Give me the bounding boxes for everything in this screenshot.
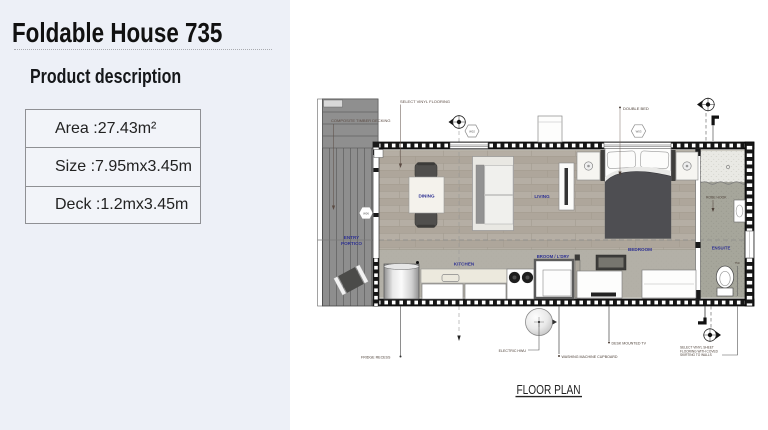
svg-text:COMPOSITE TIMBER DECKING: COMPOSITE TIMBER DECKING (331, 118, 391, 123)
svg-text:BEDROOM: BEDROOM (628, 247, 652, 252)
svg-text:WASHING MACHINE CUPBOARD: WASHING MACHINE CUPBOARD (562, 355, 618, 359)
svg-text:LIVING: LIVING (534, 194, 550, 199)
svg-text:ENSUITE: ENSUITE (712, 246, 731, 251)
svg-text:750: 750 (734, 261, 739, 265)
svg-text:SELECT VINYL FLOORING: SELECT VINYL FLOORING (400, 99, 450, 104)
svg-text:DINING: DINING (418, 194, 435, 199)
svg-text:SKIRTING TO WALLS: SKIRTING TO WALLS (680, 353, 712, 357)
svg-text:PORTICO: PORTICO (341, 241, 362, 246)
svg-text:W06: W06 (363, 211, 369, 215)
svg-text:KITCHEN: KITCHEN (454, 262, 475, 267)
svg-text:DOUBLE BED: DOUBLE BED (623, 106, 649, 111)
svg-text:W03: W03 (636, 129, 642, 133)
svg-text:FRIDGE RECESS: FRIDGE RECESS (361, 356, 391, 360)
svg-text:DESK MOUNTED TV: DESK MOUNTED TV (612, 342, 647, 346)
svg-text:W02: W02 (469, 129, 475, 133)
svg-text:ROBE HOOK: ROBE HOOK (706, 196, 727, 200)
svg-text:BROOM / L'DRY: BROOM / L'DRY (537, 254, 570, 259)
svg-text:FLOOR PLAN: FLOOR PLAN (517, 382, 581, 397)
svg-text:ELECTRIC HWU: ELECTRIC HWU (499, 349, 527, 353)
svg-text:ENTRY: ENTRY (344, 235, 359, 240)
